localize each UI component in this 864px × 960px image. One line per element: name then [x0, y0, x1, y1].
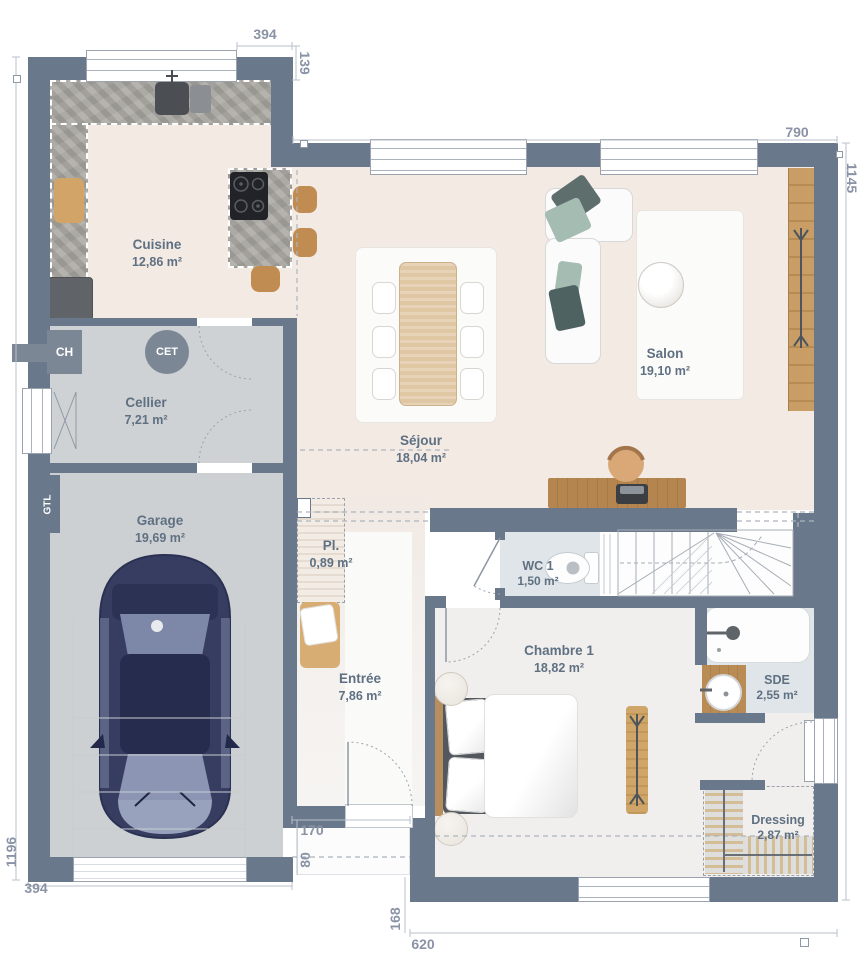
wall-stairs-right: [793, 513, 814, 608]
wall-chambre-top-b: [500, 596, 805, 608]
room-label-placard: Pl. 0,89 m²: [309, 537, 352, 571]
dim-right-height: 1145: [844, 163, 860, 193]
car: [90, 548, 240, 843]
wall-dressing-top: [700, 780, 765, 790]
bedside-pouf: [434, 812, 468, 846]
salon-window: [600, 139, 758, 175]
wall-chambre-west: [425, 600, 435, 818]
cellier-window: [22, 388, 52, 454]
dim-porch-depth: 80: [297, 852, 313, 868]
bed-duvet: [484, 694, 578, 818]
dining-chair: [460, 282, 484, 314]
wall-marker: [300, 140, 308, 148]
kitchen-window: [86, 50, 237, 82]
bar-stool: [293, 228, 317, 257]
dim-living-top-width: 790: [785, 124, 808, 140]
dim-left-height: 1196: [3, 837, 19, 867]
wall-sejour-south: [430, 508, 737, 532]
dim-chambre-bottom-width: 620: [411, 936, 434, 952]
dining-chair: [460, 326, 484, 358]
kitchen-appliance: [47, 277, 93, 321]
room-label-sde: SDE 2,55 m²: [756, 672, 797, 704]
wall-mid-vertical: [283, 318, 297, 810]
desk-chair: [608, 446, 644, 482]
cet-unit: CET: [145, 330, 189, 374]
room-label-cellier: Cellier 7,21 m²: [124, 394, 167, 428]
bar-stool: [293, 186, 317, 213]
room-label-cuisine: Cuisine 12,86 m²: [132, 236, 182, 270]
wall-chambre-top-a: [425, 596, 446, 608]
wall-wc-stub-top: [495, 532, 505, 540]
room-label-wc1: WC 1 1,50 m²: [517, 558, 558, 590]
wall-exterior-left: [28, 57, 50, 882]
wc-door-leaf: [474, 538, 500, 586]
sde-sink: [705, 674, 742, 711]
bed-headboard: [434, 696, 443, 816]
wall-exterior-right: [814, 143, 838, 902]
shower: [705, 607, 810, 663]
wall-marker: [13, 75, 21, 83]
garage-door: [73, 857, 247, 882]
bedside-pouf: [434, 672, 468, 706]
kitchen-sink-drainer: [190, 85, 211, 113]
dim-kitchen-top-width: 394: [253, 26, 276, 42]
ch-unit: CH: [47, 330, 82, 374]
room-label-dressing: Dressing 2,87 m²: [751, 812, 805, 844]
wall-kitchen-cellier-a: [50, 318, 197, 326]
dim-garage-bottom-width: 394: [24, 880, 47, 896]
wall-sde-west: [695, 600, 707, 665]
wall-marker: [800, 938, 809, 947]
room-label-sejour: Séjour 18,04 m²: [396, 432, 446, 466]
wood-wall-panel: [788, 168, 814, 411]
cooktop: [230, 172, 268, 220]
bedroom-bench: [626, 706, 648, 814]
cutting-board: [54, 178, 84, 223]
stairs-floor: [618, 530, 793, 596]
bar-stool: [251, 266, 280, 292]
dining-table: [399, 262, 457, 406]
wall-cellier-garage-a: [50, 463, 197, 473]
dim-chambre-left-offset: 168: [387, 907, 403, 930]
dining-chair: [460, 368, 484, 400]
laptop-screen: [620, 486, 644, 494]
placard-corner-box: [297, 498, 311, 518]
wc-duct-niche: [600, 532, 618, 596]
gtl-unit: GTL: [36, 475, 60, 533]
dim-porch-width: 170: [300, 822, 323, 838]
room-label-entree: Entrée 7,86 m²: [338, 670, 381, 704]
dim-kitchen-right-offset: 139: [297, 51, 313, 74]
kitchen-sink: [155, 82, 189, 115]
wall-sde-bottom: [695, 713, 765, 723]
wardrobe-rack-left: [705, 788, 743, 874]
floor-plan: CH CET GTL: [0, 0, 864, 960]
dining-chair: [372, 326, 396, 358]
ch-duct: [12, 344, 48, 362]
room-label-garage: Garage 19,69 m²: [135, 512, 185, 546]
room-label-salon: Salon 19,10 m²: [640, 345, 690, 379]
chambre-window: [578, 877, 710, 902]
chambre-french-door-frame: [814, 718, 838, 784]
wall-marker: [836, 151, 843, 158]
sejour-window: [370, 139, 527, 175]
entree-runner-rug: [345, 532, 412, 804]
room-label-chambre1: Chambre 1 18,82 m²: [524, 642, 594, 676]
dining-chair: [372, 282, 396, 314]
entry-bench-cushion: [299, 604, 339, 647]
coffee-table: [638, 262, 684, 308]
front-door-threshold: [345, 804, 413, 828]
chambre-french-door-leaf: [804, 720, 815, 782]
dining-chair: [372, 368, 396, 400]
